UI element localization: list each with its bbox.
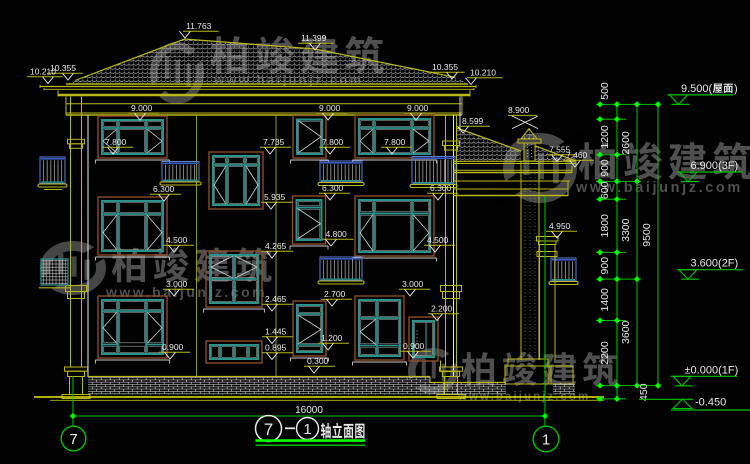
svg-text:2.700: 2.700 [324,289,346,299]
svg-text:9.000: 9.000 [319,103,341,113]
svg-text:600: 600 [599,181,611,199]
svg-text:4.800: 4.800 [326,229,348,239]
svg-text:2.465: 2.465 [265,294,287,304]
svg-text:1200: 1200 [599,125,611,149]
svg-text:450: 450 [638,383,650,401]
svg-text:10.210: 10.210 [470,68,496,78]
svg-text:7.735: 7.735 [263,137,285,147]
svg-text:7.460: 7.460 [566,150,588,160]
svg-text:0.900: 0.900 [162,342,184,352]
svg-text:4.950: 4.950 [549,221,571,231]
svg-text:±0.000(1F): ±0.000(1F) [685,364,739,376]
svg-text:10.355: 10.355 [432,62,458,72]
svg-text:7: 7 [69,431,77,448]
svg-text:1.200: 1.200 [321,333,343,343]
svg-text:3.000: 3.000 [166,279,188,289]
svg-text:8.900: 8.900 [508,105,530,115]
svg-text:1: 1 [542,432,550,449]
svg-text:5.935: 5.935 [264,192,286,202]
svg-text:900: 900 [599,257,611,275]
svg-text:6.300: 6.300 [322,183,344,193]
svg-text:7.800: 7.800 [384,137,406,147]
svg-text:11.763: 11.763 [186,21,212,31]
svg-text:9500: 9500 [641,223,653,247]
svg-text:2200: 2200 [599,341,611,365]
svg-text:-0.450: -0.450 [695,397,726,409]
svg-text:1400: 1400 [599,288,611,312]
svg-text:0.895: 0.895 [265,343,287,353]
svg-text:4.265: 4.265 [265,241,287,251]
svg-text:2.200: 2.200 [431,304,453,314]
svg-text:6.300: 6.300 [430,183,452,193]
svg-text:4.500: 4.500 [166,235,188,245]
svg-text:6.900(3F): 6.900(3F) [691,160,739,172]
svg-text:11.399: 11.399 [301,33,327,43]
svg-text:8.599: 8.599 [462,116,484,126]
svg-text:0.900: 0.900 [403,341,425,351]
svg-text:4.500: 4.500 [427,235,449,245]
svg-text:3.600(2F): 3.600(2F) [691,258,739,270]
svg-text:3600: 3600 [620,320,632,344]
svg-text:10.210: 10.210 [30,67,56,77]
svg-text:1800: 1800 [599,214,611,238]
svg-text:2600: 2600 [620,131,632,155]
svg-text:7.800: 7.800 [105,137,127,147]
svg-text:3.000: 3.000 [402,279,424,289]
svg-text:7: 7 [264,420,273,439]
svg-text:1: 1 [303,421,311,438]
svg-text:): ) [734,83,738,95]
svg-text:9.000: 9.000 [131,103,153,113]
svg-text:16000: 16000 [295,405,323,416]
svg-text:500: 500 [599,82,611,100]
svg-text:1.445: 1.445 [265,327,287,337]
svg-text:0.300: 0.300 [307,356,329,366]
svg-text:6.300: 6.300 [153,184,175,194]
svg-text:3300: 3300 [620,218,632,242]
svg-text:7.800: 7.800 [322,137,344,147]
svg-text:9.000: 9.000 [407,103,429,113]
svg-text:9.500(: 9.500( [681,83,713,95]
svg-text:900: 900 [599,159,611,177]
